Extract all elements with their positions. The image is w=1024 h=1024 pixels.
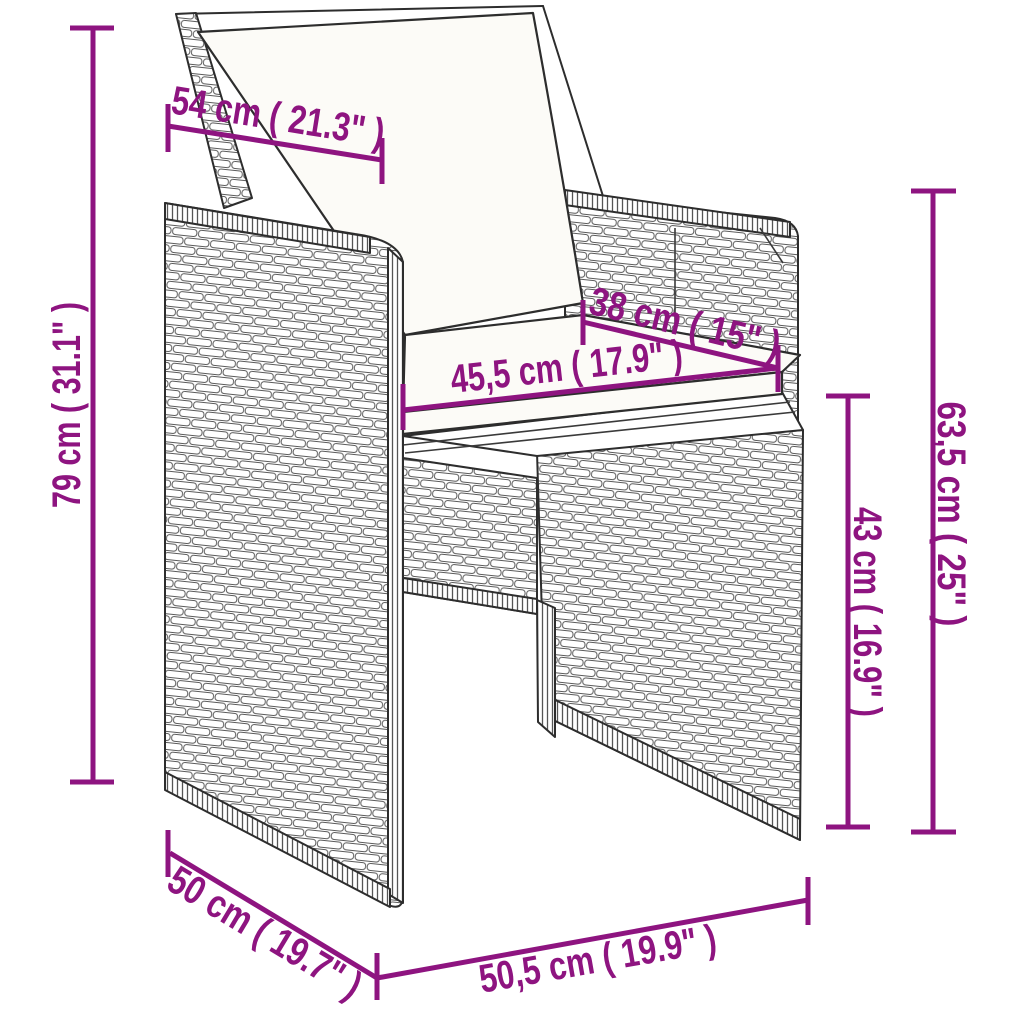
dimension-total-width: 50,5 cm ( 19.9" )	[377, 877, 808, 1002]
left-arm-front-edge	[388, 248, 403, 903]
dimension-label: 63,5 cm ( 25" )	[929, 402, 973, 627]
base-right-block	[537, 430, 803, 840]
backrest-frame-top	[176, 6, 543, 14]
dimension-label: 50,5 cm ( 19.9" )	[476, 917, 720, 1002]
dimension-seat-height: 43 cm ( 16.9" )	[826, 396, 889, 827]
chair-dimension-drawing: 54 cm ( 21.3" ) 79 cm ( 31.1" ) 38 cm ( …	[0, 0, 1024, 1024]
dimension-label: 43 cm ( 16.9" )	[845, 507, 889, 717]
product-dimension-diagram: 54 cm ( 21.3" ) 79 cm ( 31.1" ) 38 cm ( …	[0, 0, 1024, 1024]
dimension-armrest-height: 63,5 cm ( 25" )	[911, 191, 973, 832]
dimension-label: 79 cm ( 31.1" )	[45, 302, 89, 508]
dimension-total-height: 79 cm ( 31.1" )	[45, 28, 114, 782]
front-center-leg-edge	[537, 600, 555, 737]
